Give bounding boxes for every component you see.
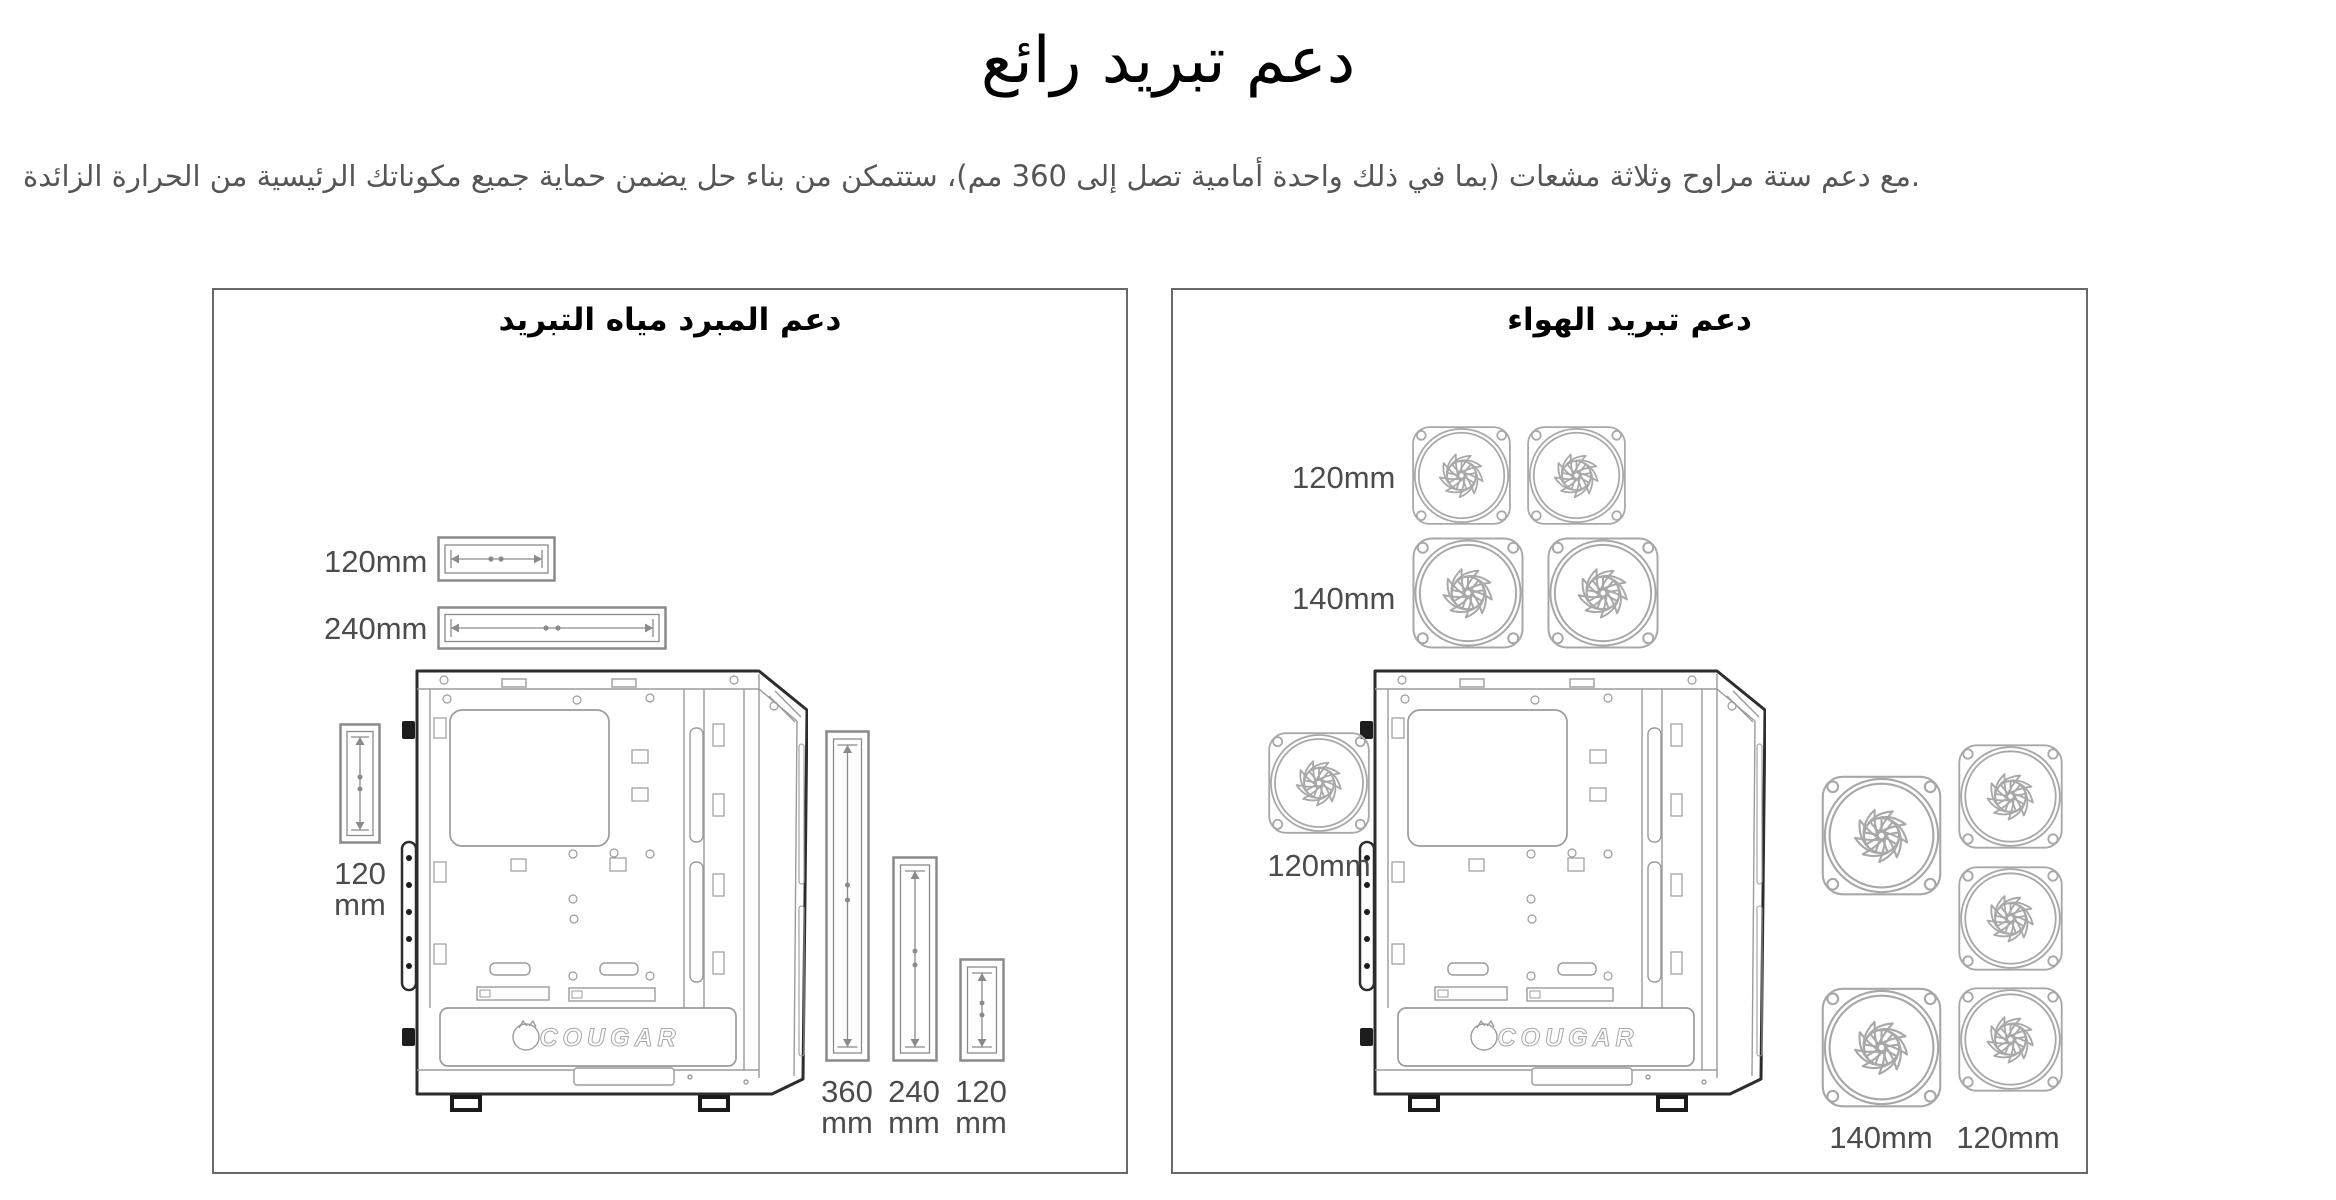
rear-radiator-unit: mm: [334, 887, 386, 922]
radiator-240mm-horizontal-icon: [437, 606, 667, 650]
pc-case-drawing: COUGAR: [1358, 666, 1766, 1118]
front-fans-140mm-label: 140mm: [1821, 1122, 1941, 1153]
cooling-support-page: { "page": { "title": "دعم تبريد رائع", "…: [0, 0, 2336, 1200]
fan-icon: [1819, 985, 1944, 1110]
front-radiator-120-label: 120 mm: [931, 1076, 1031, 1138]
fan-icon: [1956, 742, 2065, 851]
liquid-panel-title: دعم المبرد مياه التبريد: [214, 302, 1126, 338]
fan-icon: [1410, 535, 1526, 651]
cougar-logo-text: COUGAR: [539, 1024, 680, 1052]
fan-icon: [1266, 730, 1372, 836]
fan-icon: [1956, 864, 2065, 973]
rear-radiator-label: 120 mm: [310, 858, 410, 920]
rear-fan-120mm-label: 120mm: [1249, 850, 1389, 881]
radiator-unit: mm: [955, 1105, 1007, 1140]
radiator-120mm-front-icon: [959, 958, 1005, 1062]
liquid-cooling-panel: دعم المبرد مياه التبريد 120mm 240mm: [212, 288, 1128, 1174]
cougar-logo-text: COUGAR: [1497, 1024, 1638, 1052]
fan-icon: [1819, 773, 1944, 898]
radiator-360mm-front-icon: [825, 730, 870, 1062]
top-radiator-240mm-label: 240mm: [324, 613, 424, 644]
page-title: دعم تبريد رائع: [0, 10, 2336, 112]
fan-icon: [1545, 535, 1661, 651]
top-fans-120mm-label: 120mm: [1292, 462, 1392, 493]
front-fans-120mm-label: 120mm: [1948, 1122, 2068, 1153]
air-panel-title: دعم تبريد الهواء: [1173, 302, 2086, 338]
radiator-120mm-horizontal-icon: [437, 536, 556, 582]
fan-icon: [1525, 424, 1628, 527]
fan-icon: [1956, 985, 2065, 1094]
fan-icon: [1410, 424, 1513, 527]
page-subtitle: مع دعم ستة مراوح وثلاثة مشعات (بما في ذل…: [23, 156, 1920, 197]
rear-radiator-size: 120: [334, 856, 386, 891]
top-fans-140mm-label: 140mm: [1292, 583, 1392, 614]
top-radiator-120mm-label: 120mm: [324, 546, 424, 577]
air-cooling-panel: دعم تبريد الهواء 120mm 140mm COUGAR 120m…: [1171, 288, 2088, 1174]
pc-case-drawing: COUGAR: [400, 666, 808, 1118]
radiator-120mm-rear-icon: [339, 723, 381, 844]
radiator-240mm-front-icon: [892, 856, 938, 1062]
radiator-size: 120: [955, 1074, 1007, 1109]
